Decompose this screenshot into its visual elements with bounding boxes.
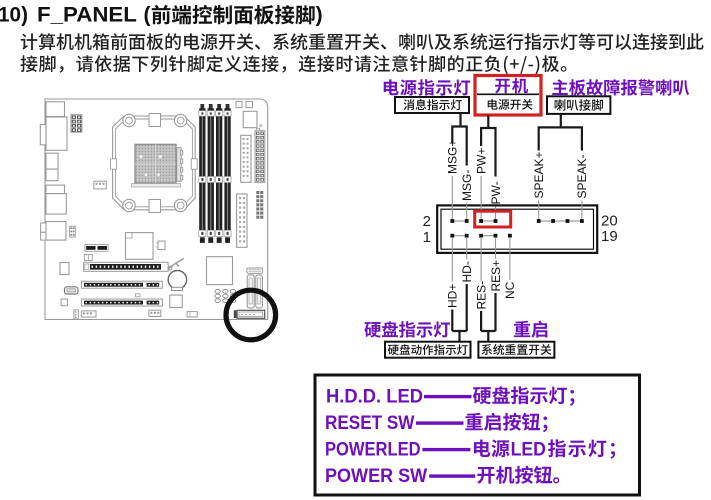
svg-text:(: (: [144, 4, 151, 27]
svg-text:MSG-: MSG-: [460, 170, 474, 201]
svg-text:1: 1: [423, 229, 431, 246]
svg-text:10): 10): [0, 4, 28, 27]
svg-text:19: 19: [601, 228, 618, 245]
svg-text:HD+: HD+: [446, 284, 460, 308]
svg-text:F_PANEL: F_PANEL: [37, 4, 137, 27]
svg-text:SPEAK+: SPEAK+: [532, 151, 546, 198]
svg-text:POWERLED: POWERLED: [325, 440, 421, 461]
svg-text:): ): [316, 4, 323, 27]
svg-text:20: 20: [601, 213, 618, 230]
svg-text:RES-: RES-: [474, 281, 488, 310]
svg-text:POWER SW: POWER SW: [325, 466, 427, 487]
svg-text:RESET SW: RESET SW: [325, 413, 414, 434]
svg-text:H.D.D. LED: H.D.D. LED: [326, 387, 423, 408]
svg-text:LED: LED: [511, 440, 546, 461]
svg-text:NC: NC: [503, 281, 517, 299]
svg-text:2: 2: [423, 213, 431, 230]
svg-text:MSG+: MSG+: [446, 140, 460, 174]
svg-text:HD-: HD-: [460, 261, 474, 282]
svg-text:PW-: PW-: [489, 181, 503, 204]
svg-text:SPEAK-: SPEAK-: [575, 154, 589, 198]
svg-text:PW+: PW+: [474, 148, 488, 174]
svg-text:RES+: RES+: [489, 260, 503, 292]
